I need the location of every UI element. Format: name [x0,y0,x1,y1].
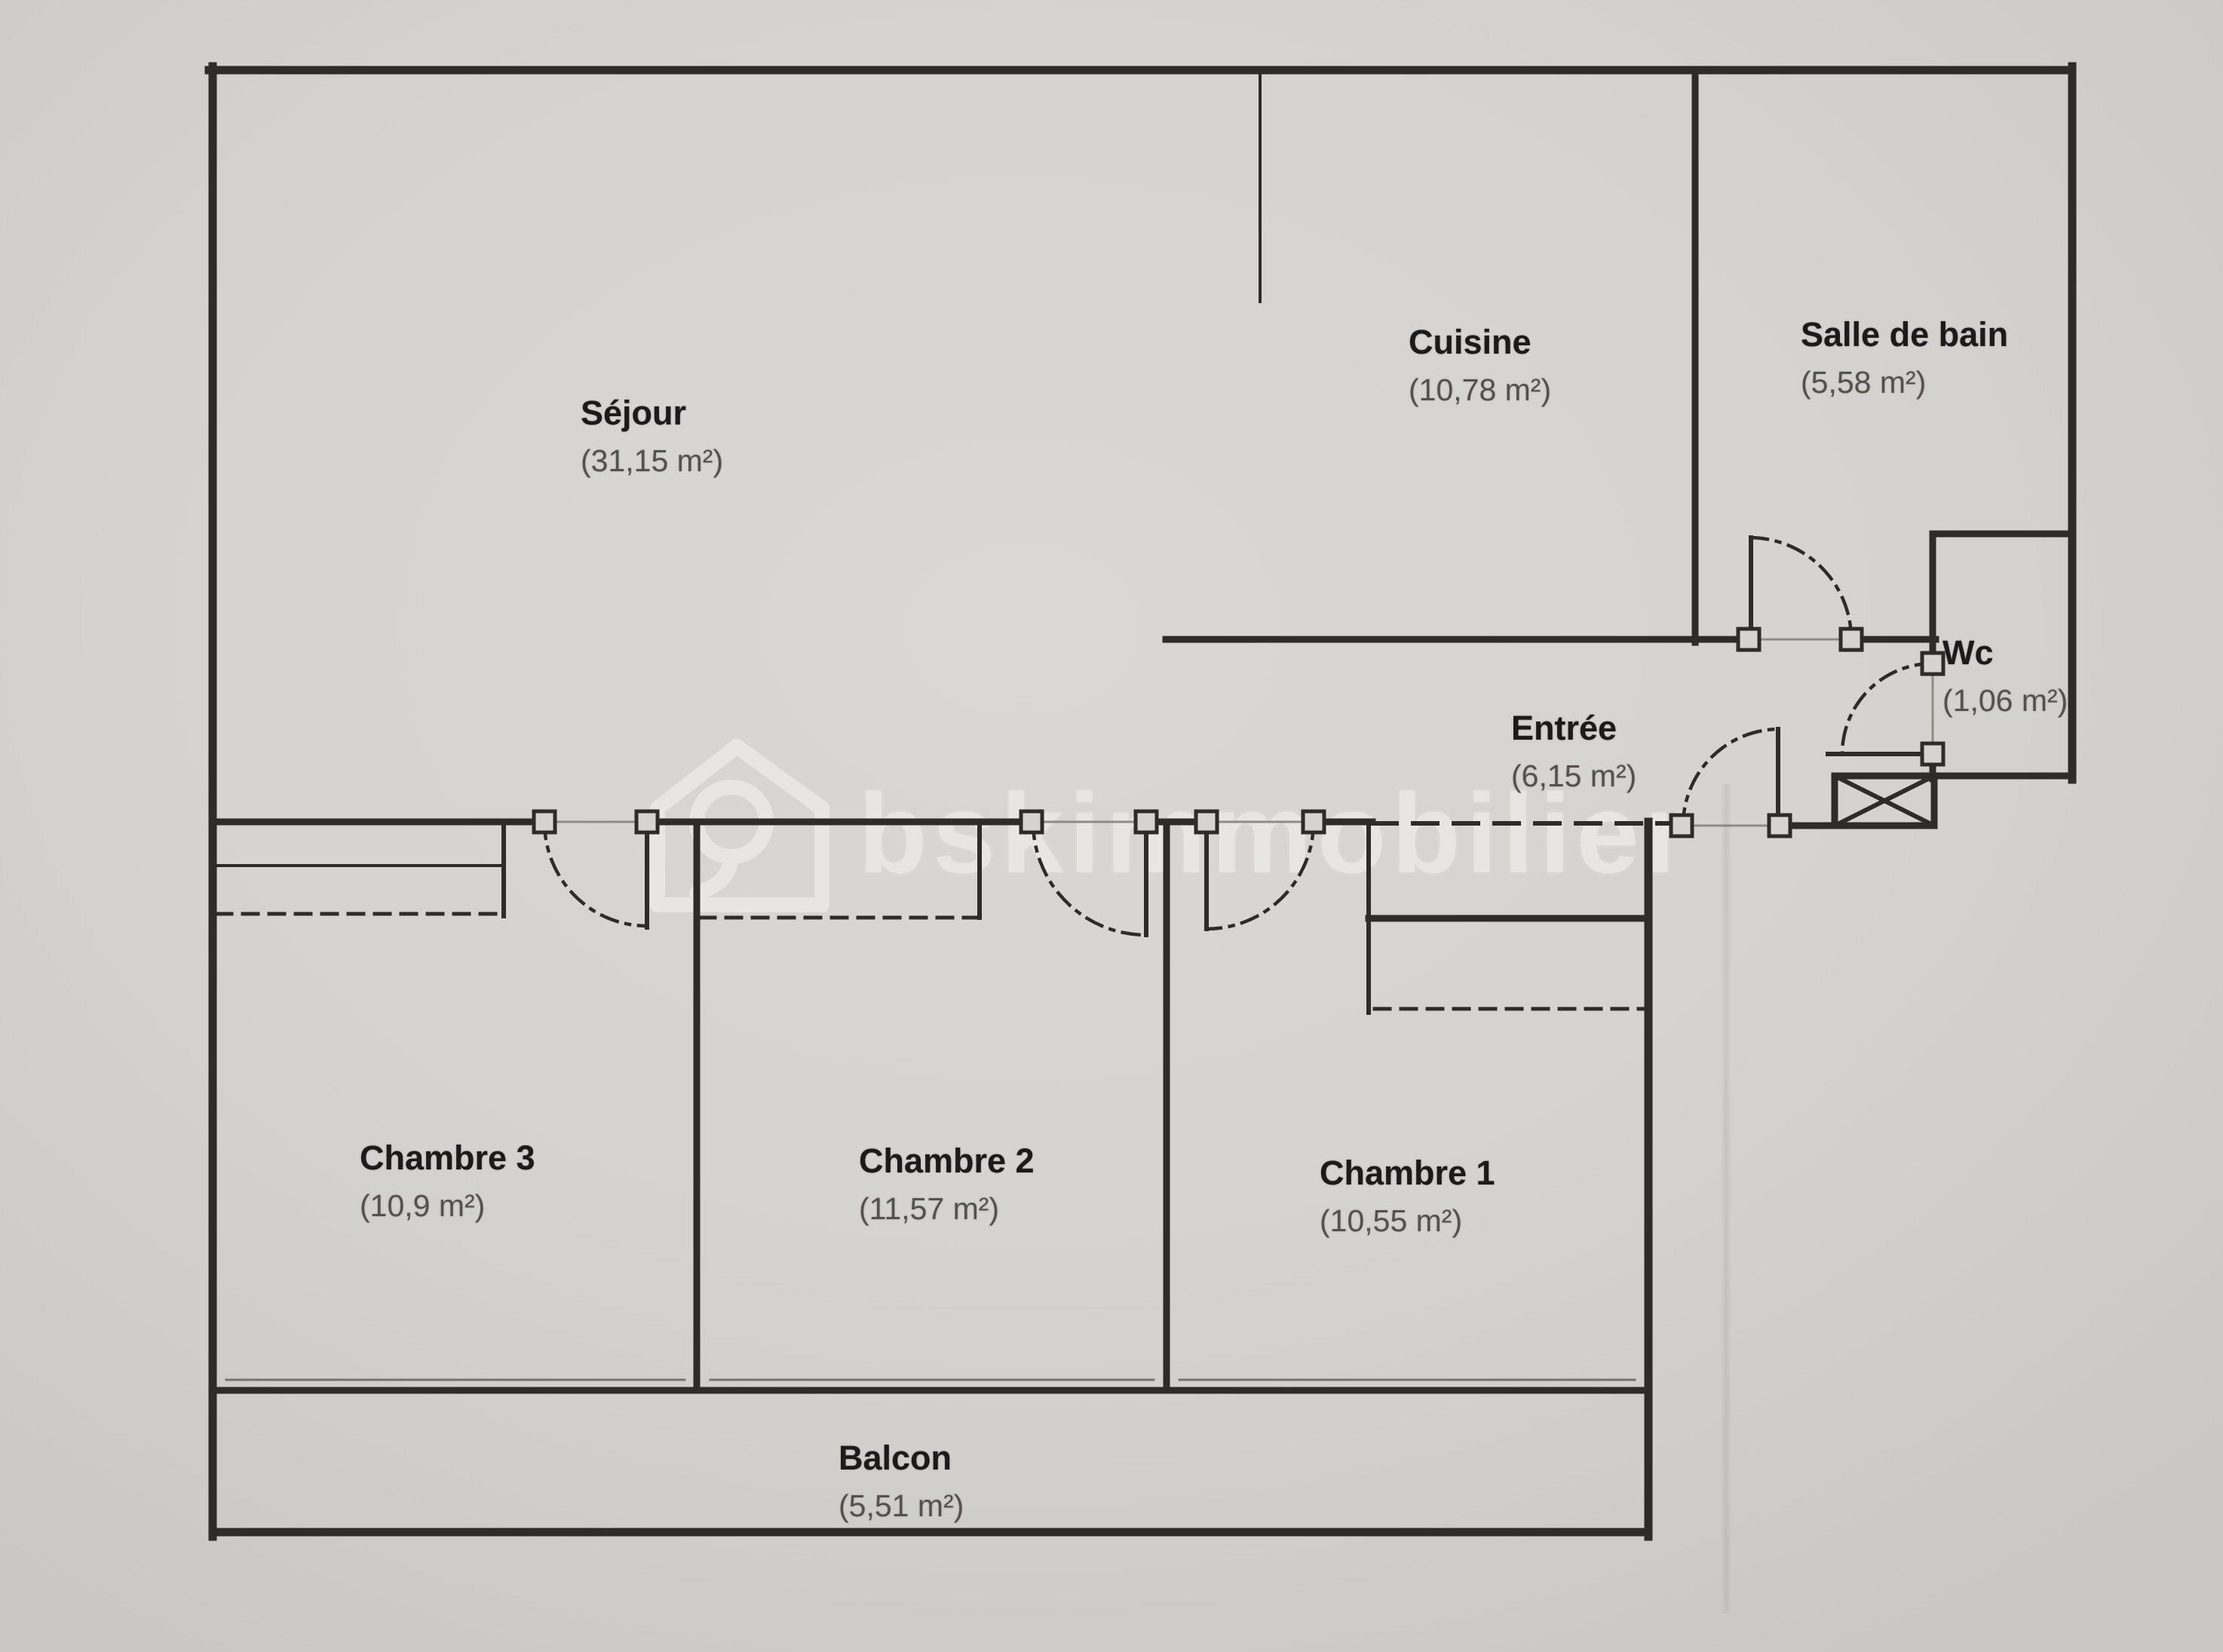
floor-plan-photo: bskimmobilier [0,0,2223,1652]
floor-plan-drawing [0,0,2223,1652]
room-label-chambre-2: Chambre 2 (11,57 m²) [859,1142,1035,1227]
room-name: Chambre 3 [360,1139,535,1178]
room-area: (1,06 m²) [1942,683,2068,719]
room-label-wc: Wc (1,06 m²) [1942,633,2068,719]
room-label-sejour: Séjour (31,15 m²) [581,394,723,479]
outer-walls [209,66,2072,1537]
room-label-chambre-1: Chambre 1 (10,55 m²) [1320,1154,1495,1239]
room-label-balcon: Balcon (5,51 m²) [839,1439,964,1524]
room-name: Entrée [1511,709,1636,748]
room-name: Salle de bain [1801,315,2008,354]
room-name: Balcon [839,1439,964,1478]
duct-box [1835,776,1934,826]
room-label-cuisine: Cuisine (10,78 m²) [1409,323,1551,408]
room-name: Wc [1942,633,2068,673]
room-area: (6,15 m²) [1511,759,1636,794]
room-name: Chambre 2 [859,1142,1035,1181]
room-area: (31,15 m²) [581,443,723,479]
closet-dashed-fronts [216,914,1648,1009]
room-label-entree: Entrée (6,15 m²) [1511,709,1636,794]
room-area: (11,57 m²) [859,1191,1035,1227]
room-name: Cuisine [1409,323,1551,362]
room-label-chambre-3: Chambre 3 (10,9 m²) [360,1139,535,1224]
room-label-salle-de-bain: Salle de bain (5,58 m²) [1801,315,2008,400]
room-name: Séjour [581,394,723,433]
door-leaves [647,538,1933,935]
room-area: (5,51 m²) [839,1488,964,1524]
room-area: (10,78 m²) [1409,372,1551,408]
room-area: (10,9 m²) [360,1188,535,1224]
room-area: (5,58 m²) [1801,365,2008,400]
door-swing-arcs [544,538,1933,935]
room-name: Chambre 1 [1320,1154,1495,1193]
door-jamb-squares [534,629,1943,836]
door-opening-lines [544,639,1933,826]
room-area: (10,55 m²) [1320,1203,1495,1239]
